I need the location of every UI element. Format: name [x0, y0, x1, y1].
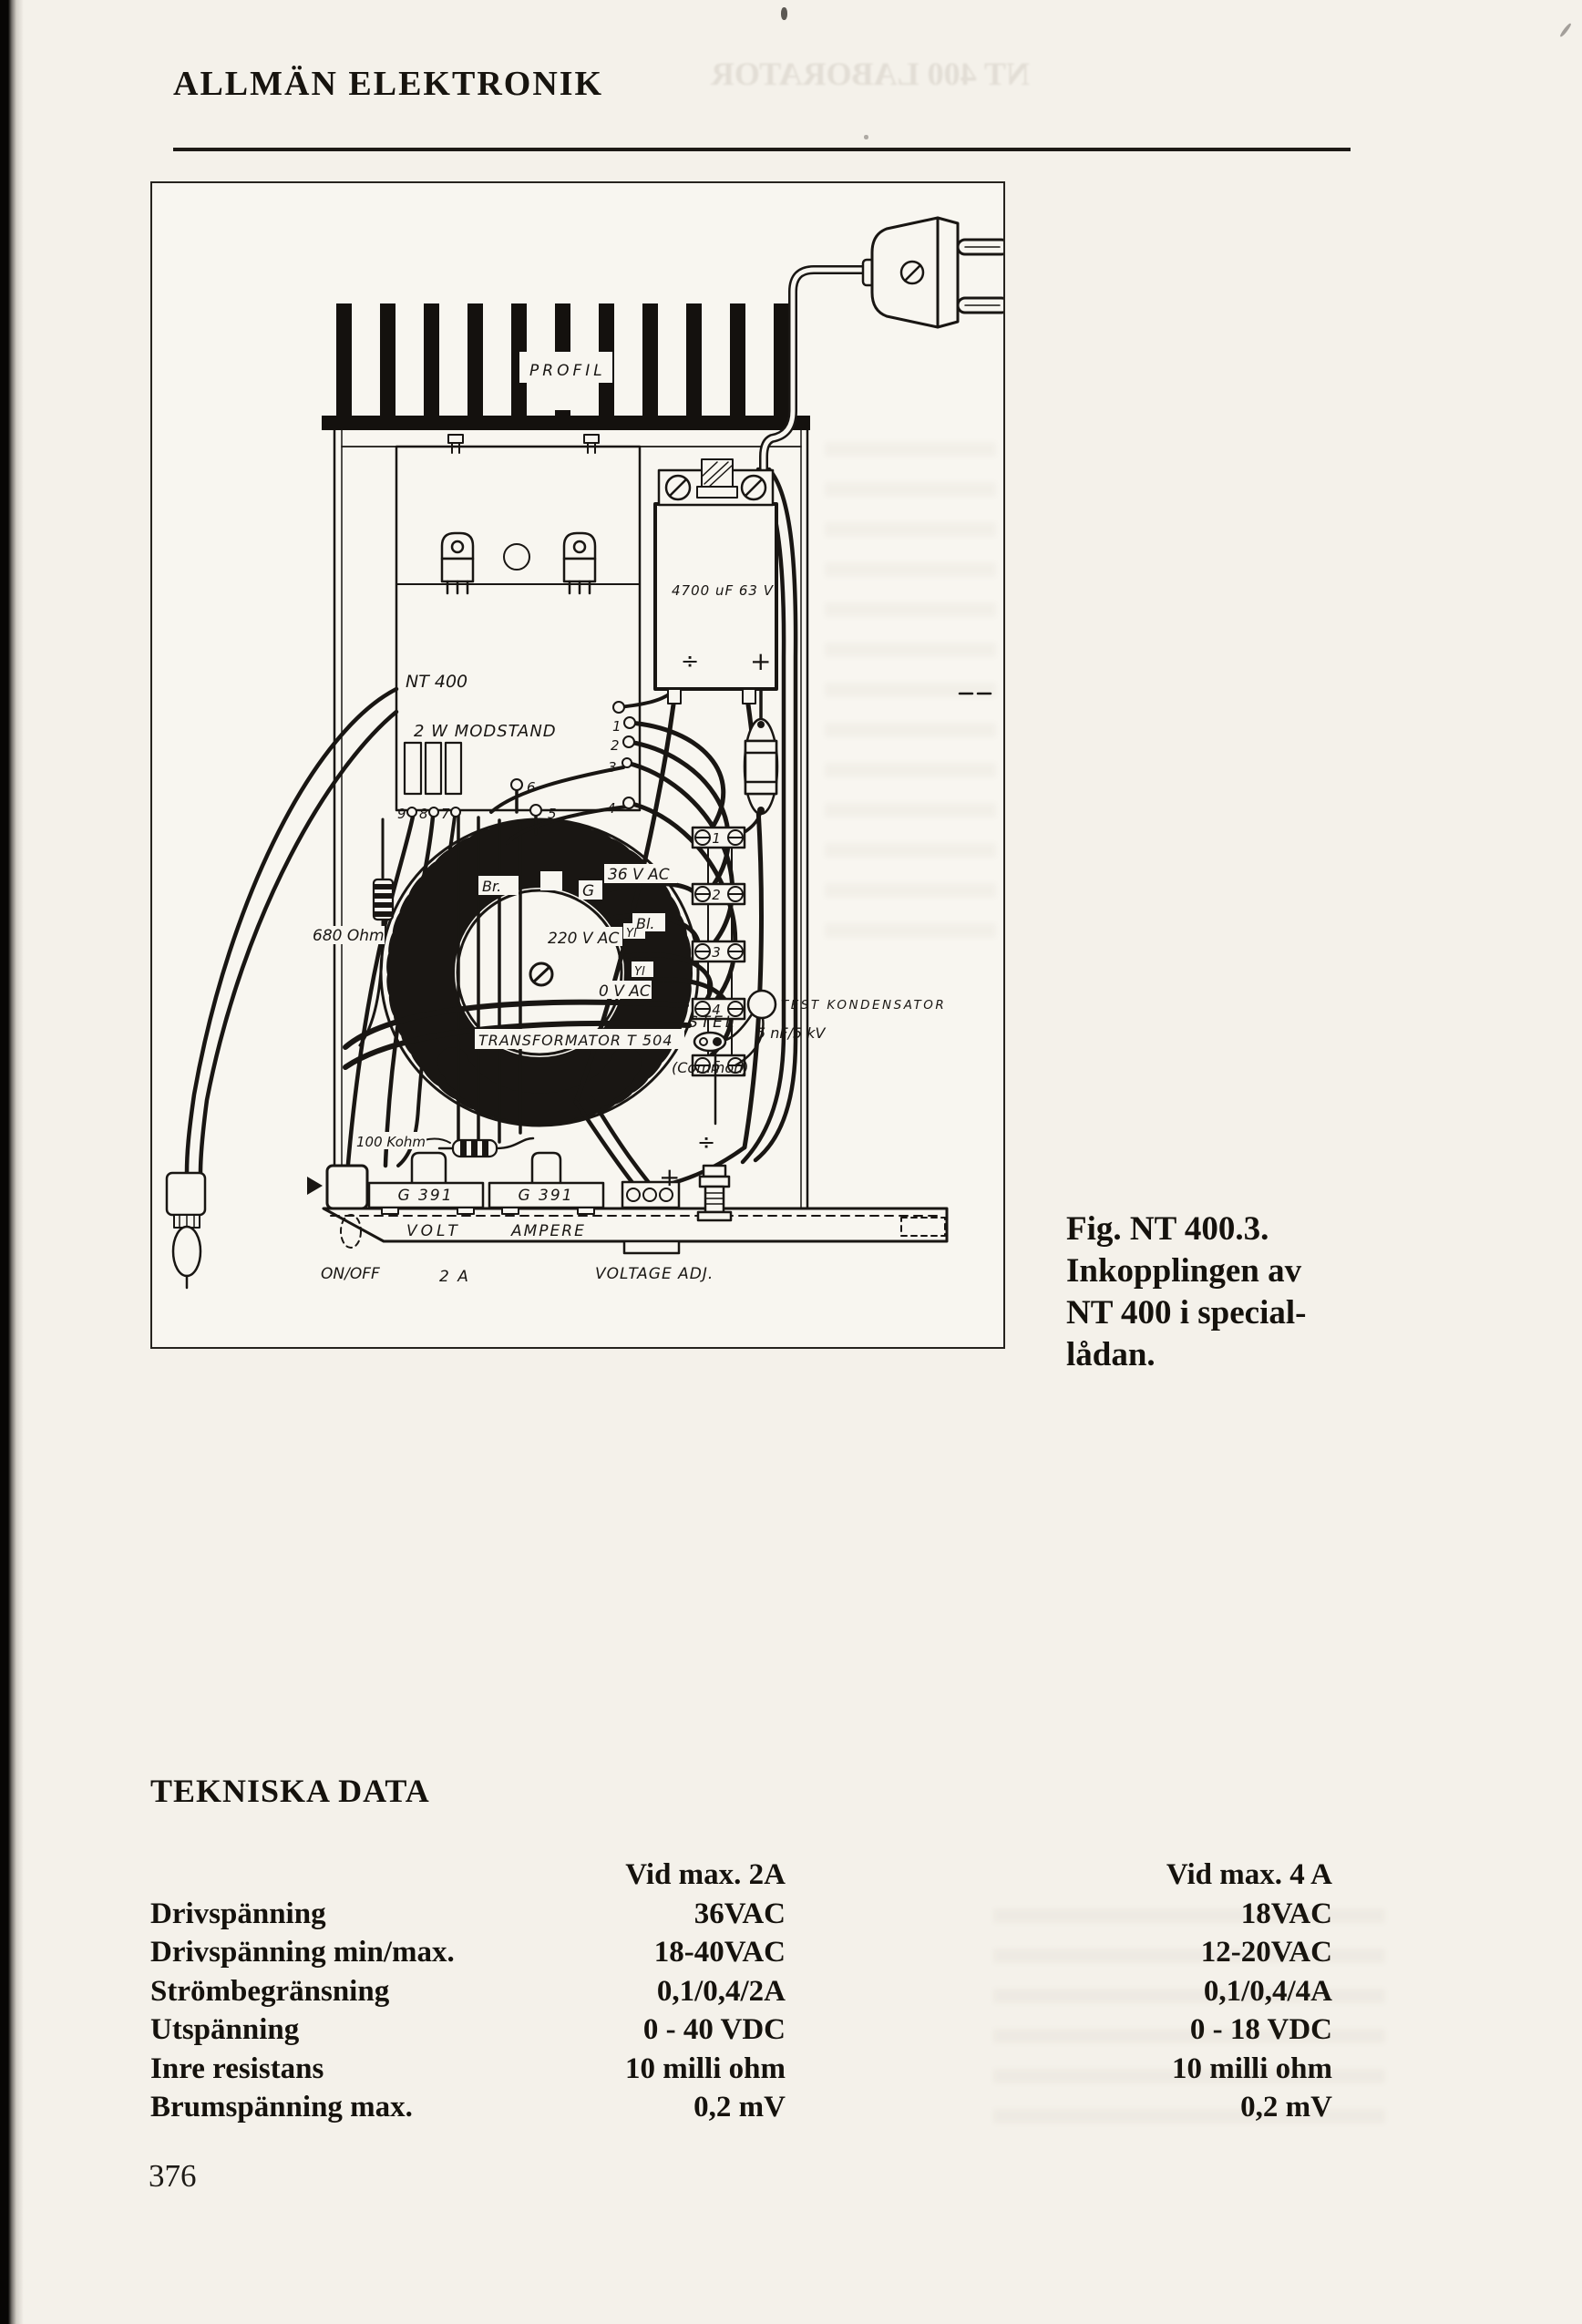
label-wire-yellow-2: Yl [634, 965, 645, 979]
mounting-hole [504, 544, 529, 570]
label-wire-yellow-1: Yl [626, 927, 637, 941]
label-modstand: 2 W MODSTAND [414, 722, 557, 741]
label-plus-post: + [659, 1162, 680, 1192]
caption-line: NT 400 i special- [1066, 1292, 1367, 1334]
row-value-2a: 0,2 mV [544, 2088, 786, 2127]
arrow-icon [307, 1177, 323, 1195]
transistor-icon [564, 533, 595, 593]
power-resistors [405, 743, 461, 794]
scan-speck [781, 7, 787, 20]
scan-binding-shadow [0, 0, 24, 2324]
terminal-1: 1 [712, 830, 721, 847]
point-7: 7 [441, 806, 450, 822]
figure-caption: Fig. NT 400.3. Inkopplingen av NT 400 i … [1066, 1208, 1367, 1376]
row-value-2a: 0 - 40 VDC [544, 2010, 786, 2050]
column-header-2a: Vid max. 2A [544, 1856, 786, 1895]
pcb-nt400 [396, 435, 640, 817]
label-36vac: 36 V AC [608, 866, 670, 884]
tech-data-heading: TEKNISKA DATA [150, 1772, 430, 1810]
pilot-lamp-icon [167, 1173, 205, 1288]
label-test-value: 5 nF/5 kV [756, 1024, 827, 1042]
point-6: 6 [527, 779, 536, 796]
point-8: 8 [419, 806, 428, 822]
row-value-2a: 18-40VAC [544, 1933, 786, 1972]
row-value-2a: 36VAC [544, 1895, 786, 1934]
label-wire-blue: Bl. [636, 915, 655, 932]
transistor-icon [442, 533, 473, 593]
label-meter-ampere: G 391 [518, 1187, 573, 1205]
label-2a: 2 A [439, 1268, 470, 1286]
row-label: Brumspänning max. [150, 2088, 544, 2127]
wiring-diagram: PROFIL 4700 uF 63 V ÷ + NT 400 2 W MODST… [152, 183, 1003, 1347]
row-label: Drivspänning min/max. [150, 1933, 544, 1972]
label-680ohm: 680 Ohm [313, 927, 385, 945]
binding-post-icon [698, 1166, 731, 1220]
row-value-2a: 0,1/0,4/2A [544, 1972, 786, 2011]
terminal-3: 3 [712, 944, 721, 961]
caption-line: Inkopplingen av [1066, 1250, 1367, 1292]
label-wire-g: G [582, 882, 594, 900]
scan-speck [1559, 23, 1572, 38]
row-label: Drivspänning [150, 1895, 544, 1934]
label-volt: VOLT [406, 1222, 461, 1240]
label-transformator: TRANSFORMATOR T 504 [478, 1032, 673, 1049]
scan-speck [864, 135, 868, 139]
label-profil: PROFIL [529, 362, 606, 380]
label-on-off: ON/OFF [321, 1265, 380, 1283]
point-2: 2 [611, 737, 620, 754]
scanned-book-page: NT 400 LABORATOR ALLMÄN ELEKTRONIK [0, 0, 1582, 2324]
page-title: ALLMÄN ELEKTRONIK [173, 64, 603, 104]
title-rule [173, 148, 1351, 151]
diagram-labels: PROFIL 4700 uF 63 V ÷ + NT 400 2 W MODST… [313, 362, 946, 1286]
label-minus-post: ÷ [697, 1129, 715, 1155]
fuse-icon [745, 719, 777, 832]
label-plus: + [750, 646, 771, 676]
point-5: 5 [548, 806, 557, 822]
label-stel: STEL [688, 1013, 736, 1032]
row-label: Utspänning [150, 2010, 544, 2050]
point-4: 4 [607, 800, 616, 817]
caption-line: lådan. [1066, 1334, 1367, 1376]
screw-icon [448, 435, 599, 453]
point-3: 3 [608, 759, 617, 776]
caption-line: Fig. NT 400.3. [1066, 1208, 1367, 1250]
label-board: NT 400 [406, 672, 467, 692]
label-0vac: 0 V AC [599, 982, 651, 1001]
label-220vac: 220 V AC [548, 930, 620, 948]
label-wire-brown: Br. [482, 878, 501, 895]
label-capacitor-value: 4700 uF 63 V [672, 582, 775, 599]
label-voltage-adj: VOLTAGE ADJ. [595, 1265, 714, 1283]
terminal-2: 2 [712, 887, 721, 903]
diagram-art: PROFIL 4700 uF 63 V ÷ + NT 400 2 W MODST… [167, 218, 1003, 1288]
label-meter-volt: G 391 [397, 1187, 453, 1205]
label-test-kondensator: TEST KONDENSATOR [781, 998, 946, 1013]
label-common: (Common) [672, 1059, 749, 1076]
mains-plug-icon [863, 218, 1003, 327]
figure-frame: PROFIL 4700 uF 63 V ÷ + NT 400 2 W MODST… [150, 181, 1005, 1349]
row-value-2a: 10 milli ohm [544, 2050, 786, 2089]
point-9: 9 [397, 806, 406, 822]
ink-bleed-smudge [993, 1887, 1385, 2123]
row-label: Strömbegränsning [150, 1972, 544, 2011]
row-label: Inre resistans [150, 2050, 544, 2089]
power-switch [327, 1166, 367, 1208]
page-number: 376 [149, 2158, 197, 2195]
point-1: 1 [612, 718, 621, 735]
label-minus: ÷ [681, 648, 699, 674]
label-ampere: AMPERE [510, 1222, 586, 1240]
label-100kohm: 100 Kohm [356, 1134, 426, 1150]
panel-tab [624, 1241, 679, 1253]
